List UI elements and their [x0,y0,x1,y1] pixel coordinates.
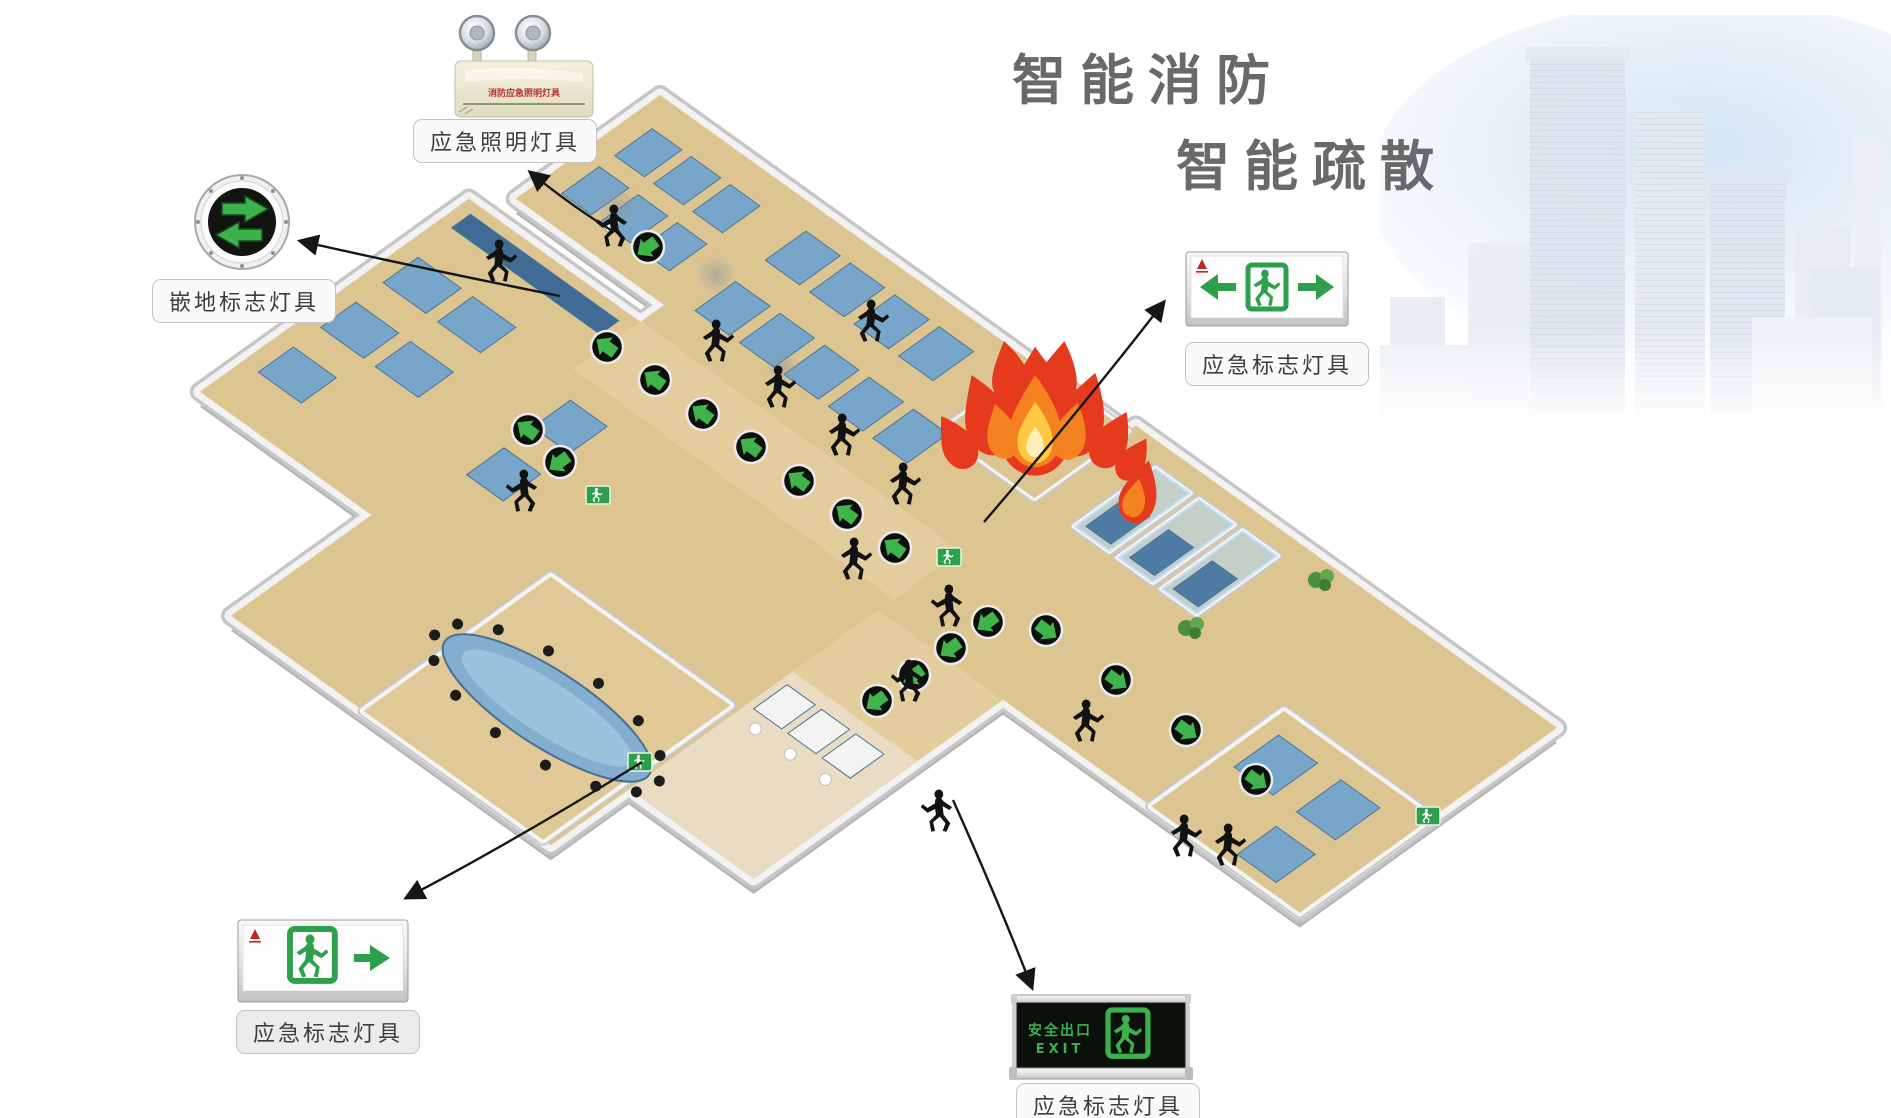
smart-fire-evacuation-poster: 智能消防 智能疏散 [0,0,1891,1118]
exit-sign-double-arrow-product [1186,252,1348,326]
safety-exit-en-text: EXIT [1036,1042,1085,1057]
safety-exit-sign-product: 安全出口 EXIT [1009,995,1193,1080]
wall-exit-sign-icon [937,548,961,566]
runner-silhouette [921,790,952,832]
ground-embedded-sign-light-product [195,175,289,269]
headline-line-2: 智能疏散 [1176,122,1448,201]
label-exit-sign-bottom: 应急标志灯具 [1016,1083,1200,1118]
exit-sign-right-arrow-product [238,920,408,1002]
wall-exit-sign-icon [1416,807,1440,825]
headline-line-1: 智能消防 [1012,36,1284,115]
product-caption-text: 消防应急照明灯具 [488,87,560,99]
label-emergency-lighting: 应急照明灯具 [413,119,597,163]
label-exit-sign-right: 应急标志灯具 [1185,342,1369,386]
arrow-to-bottom-exit-sign [953,800,1032,988]
twin-head-emergency-light-product: 消防应急照明灯具 [455,16,593,117]
safety-exit-cn-text: 安全出口 [1028,1022,1092,1039]
evacuation-floorplan-illustration: 消防应急照明灯具 [0,0,1891,1118]
label-exit-sign-left: 应急标志灯具 [236,1010,420,1054]
wall-exit-sign-icon [586,486,610,504]
label-ground-sign: 嵌地标志灯具 [152,279,336,323]
